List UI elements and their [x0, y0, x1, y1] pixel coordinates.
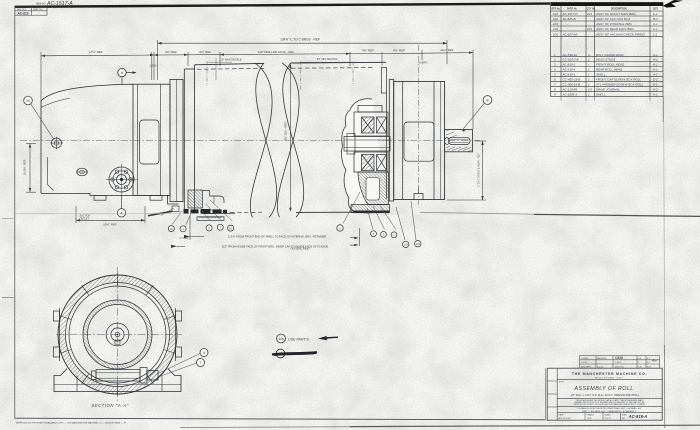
svg-text:FRONT CAP SCREW BOX ROLL: FRONT CAP SCREW BOX ROLL	[596, 78, 641, 82]
svg-text:3"=1'-0": 3"=1'-0"	[605, 418, 612, 420]
svg-text:E-2: E-2	[653, 83, 658, 87]
svg-text:ASSY OF SUCTION BOX: ASSY OF SUCTION BOX	[595, 17, 631, 21]
svg-text:FRONT ROLL HEAD: FRONT ROLL HEAD	[596, 63, 625, 67]
svg-text:TITLE: TITLE	[559, 382, 565, 384]
svg-text:A-1: A-1	[652, 58, 658, 62]
svg-text:10" MAX DECKLE: 10" MAX DECKLE	[220, 58, 242, 62]
svg-text:MIDDLETOWN, OHIO: MIDDLETOWN, OHIO	[595, 378, 624, 380]
svg-text:±.306: ±.306	[150, 64, 157, 68]
svg-text:DESCRIPTION: DESCRIPTION	[611, 8, 627, 10]
svg-text:1½: 1½	[588, 88, 593, 92]
svg-text:ASSY OF VACUUM CHECK PIPING: ASSY OF VACUUM CHECK PIPING	[595, 32, 646, 36]
svg-text:CC-100-2-B: CC-100-2-B	[563, 58, 579, 62]
svg-text:TOLERANCES EXCEPT AS NOTED: FR: TOLERANCES EXCEPT AS NOTED: FRACTIONAL ±…	[577, 407, 642, 410]
svg-text:17½" REF: 17½" REF	[89, 50, 103, 54]
svg-text:E-2: E-2	[653, 78, 658, 82]
svg-text:PART No.: PART No.	[567, 7, 578, 10]
svg-text:101: 101	[587, 27, 592, 31]
svg-text:102: 102	[553, 17, 558, 21]
svg-text:DWG: DWG	[622, 415, 627, 417]
svg-text:28" DIA - REF: 28" DIA - REF	[284, 121, 288, 140]
svg-text:C TO C FRONT & REAR - REF: C TO C FRONT & REAR - REF	[478, 153, 481, 187]
svg-text:ASSY OF FRONT MAIN BRG: ASSY OF FRONT MAIN BRG	[595, 12, 636, 16]
svg-text:28" DIA. x 110" O.F. R.E. SUC: 28" DIA. x 110" O.F. R.E. SUCT. PRESSURE…	[570, 393, 640, 397]
svg-text:DATE: DATE	[559, 413, 565, 416]
svg-text:AC-819-1: AC-819-1	[562, 73, 576, 77]
svg-text:134⅝" C TO C BRGS - REF: 134⅝" C TO C BRGS - REF	[280, 38, 320, 42]
svg-text:REVISED: REVISED	[597, 358, 607, 360]
svg-text:2-48-9: 2-48-9	[615, 362, 622, 364]
svg-text:10: 10	[170, 227, 174, 231]
svg-text:REF No.: REF No.	[552, 8, 561, 10]
svg-text:2: 2	[553, 58, 556, 62]
svg-text:7: 7	[200, 361, 202, 365]
svg-text:ON SEAL RING: ON SEAL RING	[290, 247, 309, 251]
svg-text:NEW NO.: NEW NO.	[36, 4, 46, 6]
svg-text:DRAWN: DRAWN	[587, 413, 595, 416]
svg-text:AC-819: AC-819	[18, 12, 29, 16]
svg-text:101: 101	[587, 12, 592, 16]
svg-text:ASSY OF REAR MAIN BRG: ASSY OF REAR MAIN BRG	[595, 27, 634, 31]
svg-text:AC-1517-A: AC-1517-A	[46, 1, 73, 7]
svg-text:AC-1605-1: AC-1605-1	[562, 93, 578, 97]
svg-text:Aw: Aw	[651, 359, 657, 363]
svg-text:AC-819-4: AC-819-4	[562, 68, 576, 72]
svg-text:APP 10-12-43: APP 10-12-43	[559, 417, 571, 420]
svg-text:CC-400-19-B: CC-400-19-B	[563, 78, 581, 82]
svg-text:F-1: F-1	[653, 12, 658, 16]
svg-text:4⅜" REF: 4⅜" REF	[362, 49, 374, 53]
svg-text:90" MIN DECKLE: 90" MIN DECKLE	[317, 57, 338, 61]
svg-text:101: 101	[553, 12, 558, 16]
svg-text:1-1: 1-1	[653, 32, 658, 36]
svg-text:THE MANCHESTER MACHINE CO.: THE MANCHESTER MACHINE CO.	[572, 372, 647, 376]
svg-text:QTY No.: QTY No.	[587, 8, 596, 10]
svg-text:DRIVE JOURNAL: DRIVE JOURNAL	[596, 88, 620, 92]
svg-text:115" FROM INSIDE FACE OF FRONT: 115" FROM INSIDE FACE OF FRONT BRG. INNE…	[222, 245, 328, 249]
svg-text:4⅜" REF: 4⅜" REF	[199, 50, 211, 54]
svg-text:⅝ BRG: ⅝ BRG	[418, 61, 427, 65]
svg-text:SHELL: SHELL	[596, 73, 606, 77]
svg-text:AC-819-A: AC-819-A	[628, 414, 648, 419]
svg-text:REPRODUCED IN ANY FORM NOR USE: REPRODUCED IN ANY FORM NOR USED FOR MANU…	[574, 403, 646, 406]
svg-text:OUTLET: OUTLET	[80, 218, 90, 221]
svg-text:112⅝" FROM FRONT END OF SHELL: 112⅝" FROM FRONT END OF SHELL TO FACE OF…	[228, 235, 326, 239]
svg-text:AC-627-A2: AC-627-A2	[562, 32, 578, 36]
svg-text:6: 6	[203, 351, 205, 355]
svg-text:A-2: A-2	[652, 88, 658, 92]
svg-text:103: 103	[553, 22, 558, 26]
svg-text:USE PART'S: USE PART'S	[288, 337, 309, 341]
svg-text:CC-500-19-B: CC-500-19-B	[563, 83, 581, 87]
svg-text:4⅛" REF: 4⅛" REF	[393, 48, 405, 52]
svg-text:B-1: B-1	[653, 17, 658, 21]
svg-text:10: 10	[26, 99, 30, 103]
svg-text:103: 103	[404, 244, 409, 247]
svg-text:STL WASHER SCREW BOX ROLL: STL WASHER SCREW BOX ROLL	[596, 83, 644, 87]
svg-text:SECTION "A-A": SECTION "A-A"	[91, 403, 129, 408]
svg-text:AC-625-B: AC-625-B	[562, 17, 576, 21]
svg-text:REPRODUCED FROM BEST AVAILABLE: REPRODUCED FROM BEST AVAILABLE COPY — TH…	[16, 422, 127, 425]
svg-text:BOLT GUARD RING: BOLT GUARD RING	[596, 53, 624, 57]
svg-text:A-1: A-1	[652, 93, 658, 97]
svg-text:AC-819-2: AC-819-2	[562, 63, 576, 67]
svg-text:ASSEMBLY OF ROLL: ASSEMBLY OF ROLL	[573, 386, 633, 392]
svg-text:C-105: C-105	[581, 362, 588, 364]
svg-text:10: 10	[229, 226, 233, 230]
svg-text:110" DRILLED FACE - REF: 110" DRILLED FACE - REF	[258, 50, 295, 54]
svg-text:105: 105	[278, 337, 283, 341]
svg-text:11⅛" REF: 11⅛" REF	[440, 48, 454, 52]
svg-text:REAR ROLL HEAD: REAR ROLL HEAD	[596, 68, 623, 72]
svg-text:HEAD STUDS: HEAD STUDS	[596, 58, 615, 62]
svg-text:ASSY OF INTERNAL BRG: ASSY OF INTERNAL BRG	[595, 22, 633, 26]
svg-text:10¼" REF: 10¼" REF	[103, 223, 117, 227]
svg-text:SHELL: SHELL	[596, 93, 606, 97]
svg-text:C810: C810	[615, 356, 623, 360]
svg-text:A-1: A-1	[652, 68, 658, 72]
svg-text:PART NO.: PART NO.	[33, 8, 43, 11]
svg-text:SCALE: SCALE	[605, 413, 612, 416]
svg-text:AC-1017-D: AC-1017-D	[562, 12, 579, 16]
svg-text:4⅛" REF: 4⅛" REF	[165, 50, 177, 54]
svg-text:A-1: A-1	[652, 53, 658, 57]
svg-text:105: 105	[553, 32, 558, 36]
svg-text:AC-120-88: AC-120-88	[562, 88, 578, 92]
svg-text:A-1: A-1	[652, 73, 658, 77]
svg-text:F-1: F-1	[653, 27, 658, 31]
svg-text:104: 104	[553, 27, 558, 31]
svg-text:C-2847: C-2847	[581, 358, 589, 360]
svg-text:A-1: A-1	[652, 22, 658, 26]
svg-text:A: A	[120, 210, 123, 215]
svg-text:SIZE: SIZE	[653, 8, 659, 10]
svg-text:A: A	[121, 70, 124, 75]
svg-text:104: 104	[416, 243, 421, 246]
svg-text:- _ -: - _ -	[563, 22, 568, 26]
svg-text:A-1: A-1	[652, 63, 658, 67]
svg-text:T.M.S.: T.M.S.	[587, 418, 593, 420]
svg-text:10.250 - REF: 10.250 - REF	[23, 159, 27, 175]
svg-text:NO.: NO.	[622, 418, 626, 420]
svg-text:AC-539-32: AC-539-32	[562, 53, 578, 57]
